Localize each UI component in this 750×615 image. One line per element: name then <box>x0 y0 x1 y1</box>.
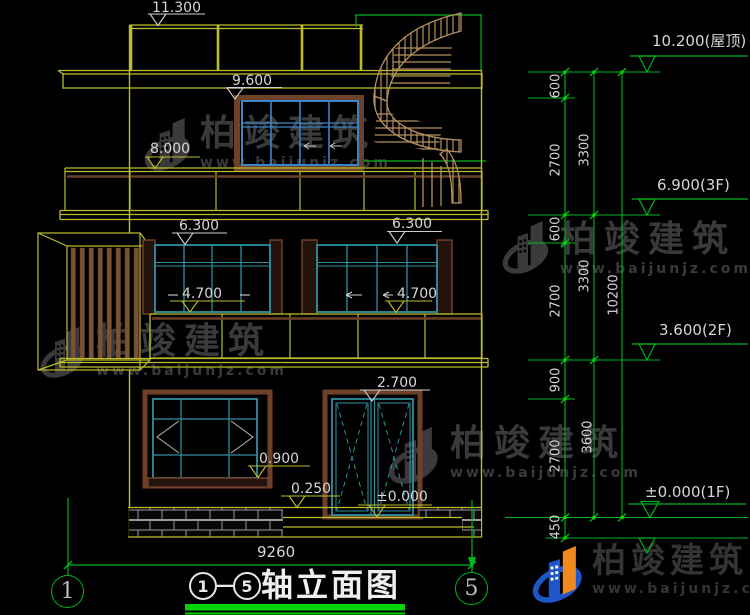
plinth <box>128 508 482 538</box>
elevation-label-8000: 8.000 <box>150 142 190 156</box>
elevation-label-6300-left: 6.300 <box>179 219 219 233</box>
level-marker-symbols <box>628 56 748 553</box>
elevation-linework <box>0 0 750 615</box>
elevation-label-11300: 11.300 <box>152 1 201 15</box>
f1-window <box>145 392 270 487</box>
f3-window <box>237 98 361 168</box>
elevation-label-2700: 2.700 <box>377 376 417 390</box>
dim-900: 900 <box>550 368 563 393</box>
level-label-2f: 3.600(2F) <box>659 323 732 338</box>
elevation-label-0000: ±0.000 <box>376 490 428 504</box>
elevation-label-4700-right: 4.700 <box>397 287 437 301</box>
dim-3600: 3600 <box>582 420 595 453</box>
dim-3300-b: 3300 <box>579 259 592 292</box>
dim-9260: 9260 <box>257 545 295 560</box>
elevation-label-9600: 9.600 <box>232 74 272 88</box>
dim-10200: 10200 <box>608 274 621 315</box>
f2-left-balcony-box <box>38 233 150 370</box>
level-label-roof: 10.200(屋顶) <box>652 34 746 49</box>
axis-bubble-1-label: 1 <box>61 579 75 604</box>
title-underline <box>185 604 405 614</box>
axis-bubble-1: 1 <box>51 575 84 608</box>
title-axis-from: 1 <box>189 572 217 600</box>
level-label-3f: 6.900(3F) <box>657 178 730 193</box>
title-axis-from-label: 1 <box>197 577 208 596</box>
axis-bubble-5-label: 5 <box>465 576 479 601</box>
title-separator: — <box>216 575 234 596</box>
dim-2700-b: 2700 <box>550 284 563 317</box>
elevation-label-4700-left: 4.700 <box>182 287 222 301</box>
elevation-label-0250: 0.250 <box>291 482 331 496</box>
dim-2700-a: 2700 <box>550 143 563 176</box>
f2-spandrel-panels <box>150 314 482 358</box>
f2-balcony-slats <box>71 248 139 358</box>
title-axis-to-label: 5 <box>241 577 252 596</box>
level-label-1f: ±0.000(1F) <box>645 485 730 500</box>
dimension-chains <box>505 68 748 542</box>
f2-wall-piers <box>143 240 452 314</box>
axis-bubble-5: 5 <box>455 572 488 605</box>
f3-balcony-rail <box>65 168 482 210</box>
drawing-title: 轴立面图 <box>261 569 401 601</box>
title-axis-to: 5 <box>233 572 261 600</box>
dim-3300-a: 3300 <box>579 133 592 166</box>
elevation-label-0900: 0.900 <box>259 452 299 466</box>
spiral-staircase <box>372 13 461 207</box>
dim-600-a: 600 <box>550 74 563 99</box>
elevation-label-6300-right: 6.300 <box>392 217 432 231</box>
dim-2700-c: 2700 <box>550 439 563 472</box>
dim-450: 450 <box>550 515 563 540</box>
roof-parapet <box>130 25 363 70</box>
cad-elevation-drawing: 柏竣建筑 www.baijunjz.com 柏竣建筑 www.baijunjz.… <box>0 0 750 615</box>
dim-600-b: 600 <box>550 217 563 242</box>
